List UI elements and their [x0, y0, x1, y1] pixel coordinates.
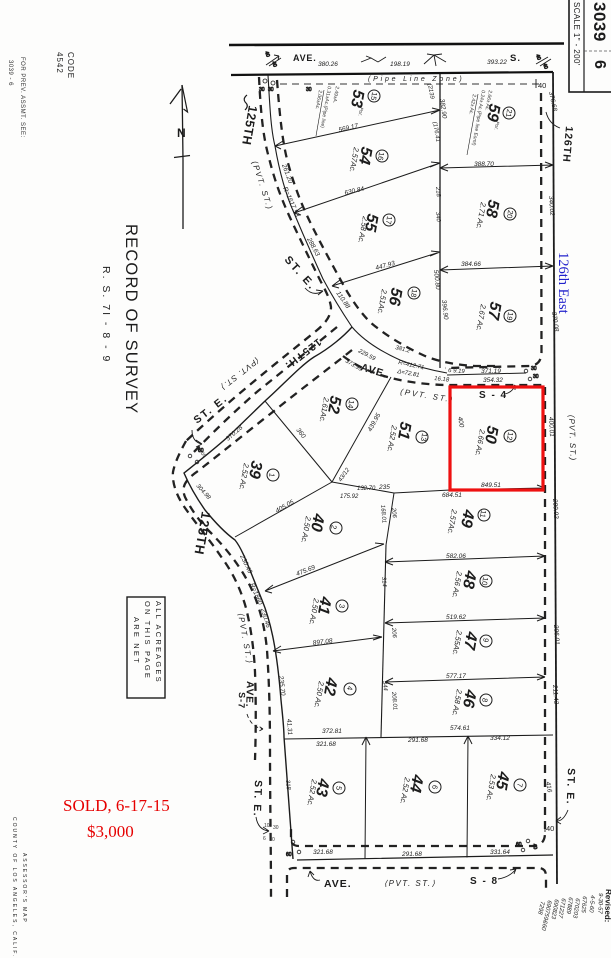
svg-text:49: 49 — [457, 507, 477, 529]
svg-text:684.51: 684.51 — [442, 492, 462, 499]
svg-text:577.17: 577.17 — [446, 673, 466, 680]
svg-text:60: 60 — [198, 448, 204, 454]
svg-text:16: 16 — [376, 151, 386, 161]
svg-text:60: 60 — [516, 842, 522, 848]
svg-text:11: 11 — [478, 509, 488, 518]
svg-text:SOLD, 6-17-15: SOLD, 6-17-15 — [63, 796, 170, 815]
svg-text:12: 12 — [505, 431, 515, 441]
svg-text:321.68: 321.68 — [316, 741, 336, 748]
svg-text:41.31: 41.31 — [285, 719, 293, 736]
svg-text:AVE.: AVE. — [293, 53, 317, 63]
svg-text:N: N — [177, 126, 186, 140]
svg-text:4542: 4542 — [55, 52, 64, 74]
svg-text:⟨PVT. ST.⟩: ⟨PVT. ST.⟩ — [384, 879, 436, 888]
svg-text:393.22: 393.22 — [487, 59, 507, 66]
svg-text:211.43: 211.43 — [551, 684, 559, 705]
svg-text:321.68: 321.68 — [313, 849, 333, 856]
svg-text:Revised:: Revised: — [603, 889, 611, 923]
svg-text:ALL ACREAGES: ALL ACREAGES — [154, 601, 163, 684]
svg-text:S - 4: S - 4 — [479, 390, 508, 401]
svg-text:6 9.19: 6 9.19 — [448, 368, 466, 375]
svg-text:40: 40 — [538, 81, 546, 90]
svg-text:344: 344 — [381, 681, 388, 692]
svg-text:53: 53 — [347, 88, 367, 109]
svg-text:582.06: 582.06 — [446, 553, 466, 560]
svg-text:SCALE 1" - 200': SCALE 1" - 200' — [572, 2, 581, 66]
svg-text:400.01: 400.01 — [547, 417, 555, 438]
svg-text:30: 30 — [531, 366, 537, 372]
svg-text:175.92: 175.92 — [340, 494, 359, 500]
svg-text:17: 17 — [384, 215, 394, 225]
svg-text:198.19: 198.19 — [390, 61, 410, 68]
svg-text:10: 10 — [480, 576, 490, 586]
svg-text:9-30-57: 9-30-57 — [596, 893, 603, 915]
svg-text:20: 20 — [505, 209, 515, 219]
svg-text:218: 218 — [434, 186, 441, 198]
svg-text:209.02: 209.02 — [551, 498, 559, 520]
svg-text:ARE NET: ARE NET — [132, 617, 141, 665]
svg-text:15: 15 — [369, 91, 379, 101]
svg-text:6: 6 — [591, 60, 608, 69]
svg-text:FOR PREV. ASSMT. SEE:: FOR PREV. ASSMT. SEE: — [19, 57, 25, 138]
svg-text:291.68: 291.68 — [401, 851, 422, 858]
svg-text:0: 0 — [272, 837, 275, 843]
svg-text:340.02: 340.02 — [547, 196, 555, 217]
svg-text:126th East: 126th East — [555, 252, 571, 314]
svg-text:R. S. 7I - 8 - 9: R. S. 7I - 8 - 9 — [100, 266, 112, 363]
svg-text:318: 318 — [284, 780, 291, 791]
svg-text:(Pipe Line Zone): (Pipe Line Zone) — [368, 76, 465, 83]
svg-text:849.51: 849.51 — [481, 482, 501, 489]
svg-text:ON THIS PAGE: ON THIS PAGE — [143, 601, 152, 680]
svg-text:574.61: 574.61 — [450, 725, 470, 732]
svg-text:40: 40 — [546, 824, 554, 833]
svg-text:S - 8: S - 8 — [470, 876, 499, 887]
svg-text:132.70: 132.70 — [357, 486, 376, 492]
svg-text:RECORD OF SURVEY: RECORD OF SURVEY — [122, 224, 140, 414]
svg-text:3039: 3039 — [590, 2, 609, 42]
svg-text:206: 206 — [390, 627, 397, 639]
svg-text:AVE.: AVE. — [324, 878, 352, 890]
svg-text:291.68: 291.68 — [407, 737, 428, 744]
svg-text:18: 18 — [409, 288, 419, 298]
svg-text:331.64: 331.64 — [490, 849, 510, 856]
svg-text:384.66: 384.66 — [461, 261, 481, 268]
svg-text:10: 10 — [264, 823, 270, 829]
svg-text:235: 235 — [378, 484, 390, 491]
svg-text:CODE: CODE — [66, 52, 75, 79]
svg-text:30: 30 — [306, 87, 312, 93]
svg-text:6: 6 — [263, 836, 266, 842]
svg-text:14: 14 — [346, 399, 356, 409]
svg-text:380.26: 380.26 — [318, 61, 338, 68]
svg-text:21: 21 — [504, 108, 514, 118]
svg-text:S-7: S-7 — [236, 692, 247, 709]
svg-text:314: 314 — [380, 577, 387, 588]
svg-text:ASSESSOR'S MAP: ASSESSOR'S MAP — [21, 853, 27, 924]
svg-text:206: 206 — [390, 507, 397, 519]
svg-text:13: 13 — [419, 432, 429, 442]
svg-text:19: 19 — [505, 311, 515, 321]
svg-text:371.19: 371.19 — [481, 368, 501, 375]
svg-text:COUNTY OF LOS ANGELES, CALIF.: COUNTY OF LOS ANGELES, CALIF. — [11, 817, 17, 958]
svg-text:30: 30 — [533, 374, 539, 380]
svg-text:30: 30 — [273, 825, 279, 831]
svg-text:ST. E.: ST. E. — [564, 768, 577, 805]
svg-text:(PVT. ST.): (PVT. ST.) — [567, 415, 578, 462]
svg-text:519.62: 519.62 — [446, 614, 466, 621]
svg-text:340: 340 — [434, 212, 441, 223]
svg-text:S.: S. — [510, 53, 521, 64]
svg-text:354.32: 354.32 — [483, 377, 503, 384]
svg-text:60: 60 — [286, 852, 292, 858]
svg-text:334.12: 334.12 — [490, 735, 510, 742]
svg-text:ST. E.: ST. E. — [251, 780, 264, 817]
svg-text:372.81: 372.81 — [322, 728, 342, 735]
svg-text:3039 - 6: 3039 - 6 — [7, 60, 13, 86]
svg-text:206.01: 206.01 — [552, 624, 560, 646]
svg-text:$3,000: $3,000 — [87, 822, 134, 841]
svg-text:388.70: 388.70 — [474, 161, 494, 168]
